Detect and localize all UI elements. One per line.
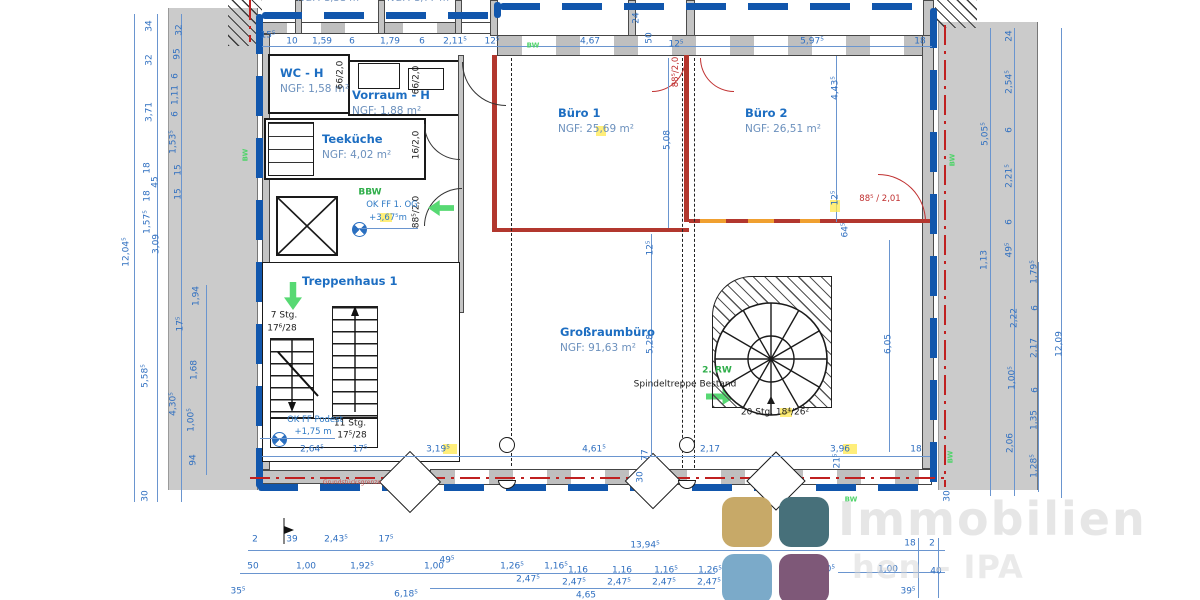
dim-line — [240, 573, 715, 574]
annotation-label: BBW — [358, 189, 381, 198]
dim-label: 3,96 — [830, 446, 850, 455]
dim-label: 1,00⁵ — [188, 408, 197, 432]
dim-label: 1,28⁵ — [1031, 454, 1040, 478]
door-arc-buero1 — [652, 58, 686, 92]
watermark-subtext: hen – IPA — [852, 548, 1024, 586]
annotation-label: 16/2,0 — [413, 131, 422, 160]
wall-buero1-bottom — [492, 228, 689, 232]
room-label-treppenhaus: Treppenhaus 1 — [302, 274, 398, 288]
property-line-top-left — [249, 0, 251, 42]
dim-label: 6,05 — [885, 334, 894, 354]
annotation-label: 2. RW — [702, 367, 732, 376]
dim-label: 30 — [637, 471, 646, 482]
dim-label: 1,26⁵ — [500, 563, 524, 572]
dim-label: 6 — [172, 111, 181, 117]
room-label-buero1: Büro 1 NGF: 25,69 m² — [558, 106, 634, 135]
spiral-stair — [712, 300, 830, 418]
dim-label: 1,79 — [380, 38, 400, 47]
structural-diamond — [625, 453, 682, 510]
dim-line — [430, 588, 715, 589]
column — [679, 437, 695, 453]
envelope-line-top — [500, 3, 932, 10]
dim-label: 49⁵ — [1006, 242, 1015, 257]
dim-label: 1,94 — [193, 286, 202, 306]
roof-hatch-top-right — [935, 0, 977, 28]
dim-label: 32 — [146, 54, 155, 65]
dim-label: 12⁵ — [668, 41, 683, 50]
dim-label: 12⁵ — [832, 190, 841, 205]
dim-label: 77 — [642, 449, 651, 460]
floor-plan-canvas: WC - H NGF: 1,58 m² Vorraum - H NGF: 1,8… — [0, 0, 1200, 600]
dim-label: 1,00⁵ — [1009, 366, 1018, 390]
dim-label: 2,47⁵ — [562, 579, 586, 588]
room-area: NGF: 26,51 m² — [745, 123, 821, 135]
room-area: NGF: 4,02 m² — [322, 149, 391, 161]
annotation-label: 20 Stg. 18⁴/26² — [741, 409, 809, 418]
logo-square-blue — [722, 554, 772, 600]
dim-label: 1,16 — [612, 567, 632, 576]
dim-label: 39⁵ — [900, 588, 915, 597]
dim-label: 6,18⁵ — [394, 591, 418, 600]
dim-label: 4,43⁵ — [832, 76, 841, 100]
wall-highlight — [748, 219, 774, 223]
dim-label: 2,47⁵ — [697, 579, 721, 588]
room-label-buero2: Büro 2 NGF: 26,51 m² — [745, 106, 821, 135]
property-line-right — [944, 25, 946, 487]
dim-label: 5,28 — [647, 334, 656, 354]
room-name: Büro 1 — [558, 106, 634, 120]
room-name: Teeküche — [322, 132, 391, 146]
dim-label: 24 — [1006, 30, 1015, 41]
dim-label: 4,65 — [576, 592, 596, 600]
level-line — [260, 438, 335, 439]
dim-label: 1,92⁵ — [350, 563, 374, 572]
dim-line — [157, 14, 158, 502]
dim-label: 95 — [174, 48, 183, 59]
room-name: Büro 2 — [745, 106, 821, 120]
dim-label: 12⁵ — [484, 38, 499, 47]
dim-label: 18 — [914, 38, 925, 47]
room-label-teekueche: Teeküche NGF: 4,02 m² — [322, 132, 391, 161]
dim-label: 5,08 — [664, 130, 673, 150]
dim-label: 1,79⁵ — [1031, 260, 1040, 284]
dim-label: 1,35 — [1031, 410, 1040, 430]
dim-label: 32 — [176, 24, 185, 35]
annotation-label: OK FF 1. OG — [366, 201, 418, 210]
dim-label: 6 — [1006, 127, 1015, 133]
wall-highlight — [800, 219, 820, 223]
dim-label: 1,13 — [981, 250, 990, 270]
dim-line — [206, 285, 207, 475]
annotation-label: NGF: 1,31 m² — [297, 0, 363, 4]
sink-counter — [358, 63, 400, 89]
column — [499, 437, 515, 453]
dim-label: 2,06 — [1007, 433, 1016, 453]
dim-label: 6 — [1032, 305, 1041, 311]
section-line — [511, 58, 512, 466]
dim-label: 5,97⁵ — [800, 38, 824, 47]
watermark-text: Immobilien — [838, 492, 1147, 546]
dim-label: 15 — [175, 164, 184, 175]
annotation-label: NGF: 1,77 m² — [387, 0, 453, 4]
dim-label: 15 — [175, 188, 184, 199]
room-label-grossraumbuero: Großraumbüro NGF: 91,63 m² — [560, 325, 655, 354]
room-area: NGF: 1,88 m² — [352, 105, 430, 117]
dim-label: 5,05⁵ — [982, 122, 991, 146]
dim-label: 1,53⁵ — [170, 130, 179, 154]
dim-label: 6 — [1006, 219, 1015, 225]
wall-buero1-buero2 — [684, 55, 689, 222]
dim-label: 1,57⁵ — [144, 210, 153, 234]
annotation-label: 17⁵/28 — [337, 432, 367, 441]
dim-label: 6 — [1032, 387, 1041, 393]
dim-label: 2,54⁵ — [1006, 70, 1015, 94]
dim-label: 21⁵ — [834, 453, 843, 468]
dim-line — [134, 14, 135, 502]
dim-label: 13,94⁵ — [630, 542, 659, 551]
door-arc-buero2-top — [700, 58, 734, 92]
dim-label: 4,67 — [580, 38, 600, 47]
annotation-label: 7 Stg. — [271, 312, 297, 321]
dim-label: 2,43⁵ — [324, 536, 348, 545]
annotation-label: Spindeltreppe Bestand — [634, 381, 737, 390]
dim-label: 50 — [247, 563, 258, 572]
dim-label: 3,09 — [153, 234, 162, 254]
annotation-label: 17⁶/28 — [267, 325, 297, 334]
dim-label: 17⁵ — [352, 446, 367, 455]
room-name: Großraumbüro — [560, 325, 655, 339]
dim-label: 2,64⁵ — [300, 446, 324, 455]
dim-label: 2,22 — [1011, 308, 1020, 328]
dim-label: 45 — [152, 176, 161, 187]
dim-label: 2,17 — [1031, 338, 1040, 358]
dim-label: 6 — [349, 38, 355, 47]
dim-line — [1061, 28, 1062, 498]
dim-label: 64⁵ — [842, 222, 851, 237]
annotation-label: BW — [527, 43, 540, 50]
door-arc-vorraum — [462, 62, 506, 106]
dim-label: 3,71 — [146, 102, 155, 122]
dim-label: 1,16⁵ — [654, 567, 678, 576]
dim-label: 2,17 — [700, 446, 720, 455]
annotation-label: 66/2,0 — [413, 66, 422, 95]
room-area: NGF: 91,63 m² — [560, 342, 655, 354]
logo-square-purple — [779, 554, 829, 600]
annotation-label: BW — [948, 451, 955, 464]
dim-label: 2,11⁵ — [443, 38, 467, 47]
annotation-label: 88⁵ / 2,01 — [859, 195, 900, 204]
dim-label: 18 — [144, 162, 153, 173]
dim-label: 94 — [190, 454, 199, 465]
dim-label: 35⁵ — [230, 588, 245, 597]
dim-line — [1014, 28, 1015, 496]
dim-label: 5,58⁵ — [142, 364, 151, 388]
dim-label: 4,30⁵ — [170, 392, 179, 416]
room-area: NGF: 25,69 m² — [558, 123, 634, 135]
room-name: Treppenhaus 1 — [302, 274, 398, 288]
kitchen-units — [268, 122, 314, 176]
dim-label: 18 — [910, 446, 921, 455]
section-line — [694, 58, 695, 468]
dim-label: 2 — [252, 536, 258, 545]
annotation-label: OK FF Podest — [287, 416, 343, 425]
dim-label: 2,47⁵ — [607, 579, 631, 588]
dim-label: 2,47⁵ — [516, 576, 540, 585]
dim-label: 3,19⁵ — [426, 446, 450, 455]
dim-label: 18 — [144, 190, 153, 201]
dim-line — [181, 14, 182, 502]
dim-label: 12,04⁵ — [123, 237, 132, 266]
dim-label: 2,47⁵ — [652, 579, 676, 588]
dim-line — [990, 28, 991, 496]
dim-label: 2,21⁵ — [1006, 164, 1015, 188]
dim-label: 12,09 — [1056, 331, 1065, 357]
elevator-x-icon — [276, 196, 338, 256]
dim-label: 15⁵ — [260, 32, 275, 41]
dim-label: 24 — [633, 12, 642, 23]
dim-label: 17⁵ — [177, 316, 186, 331]
annotation-label: BW — [243, 149, 250, 162]
dim-label: 1,11 — [172, 85, 181, 105]
annotation-label: BW — [950, 154, 957, 167]
dim-label: 39 — [286, 536, 297, 545]
dim-label: 4,61⁵ — [582, 446, 606, 455]
wall-highlight — [700, 219, 726, 223]
level-marker-og — [349, 219, 370, 240]
level-line — [358, 228, 418, 229]
dim-label: 1,68 — [191, 360, 200, 380]
annotation-label: Grundstücksgrenze — [323, 480, 381, 486]
dim-label: 1,59 — [312, 38, 332, 47]
annotation-label: +3,67⁵m — [369, 214, 407, 223]
logo-square-tan — [722, 497, 772, 547]
dim-label: 1,16⁵ — [544, 563, 568, 572]
dim-label: 6 — [172, 73, 181, 79]
door-arc-teekueche — [424, 124, 460, 160]
dim-label: 6 — [419, 38, 425, 47]
envelope-line-right — [930, 8, 937, 488]
dim-label: 1,00 — [296, 563, 316, 572]
annotation-label: +1,75 m — [294, 428, 331, 437]
dim-label: 17⁵ — [378, 536, 393, 545]
logo-square-teal — [779, 497, 829, 547]
dim-label: 30 — [142, 490, 151, 501]
dim-label: 50 — [646, 32, 655, 43]
section-line — [682, 58, 683, 468]
dim-label: 49⁵ — [439, 557, 454, 566]
dim-label: 12⁵ — [647, 240, 656, 255]
dim-line — [248, 550, 945, 551]
dim-label: 34 — [146, 20, 155, 31]
dim-label: 1,16 — [568, 567, 588, 576]
dim-label: 1,26⁵ — [698, 567, 722, 576]
dim-label: 10 — [286, 38, 297, 47]
dim-line — [262, 456, 930, 457]
envelope-line-top-left — [262, 12, 498, 19]
annotation-label: 66/2,0 — [337, 61, 346, 90]
annotation-label: 88⁵/2,0 — [672, 57, 681, 88]
